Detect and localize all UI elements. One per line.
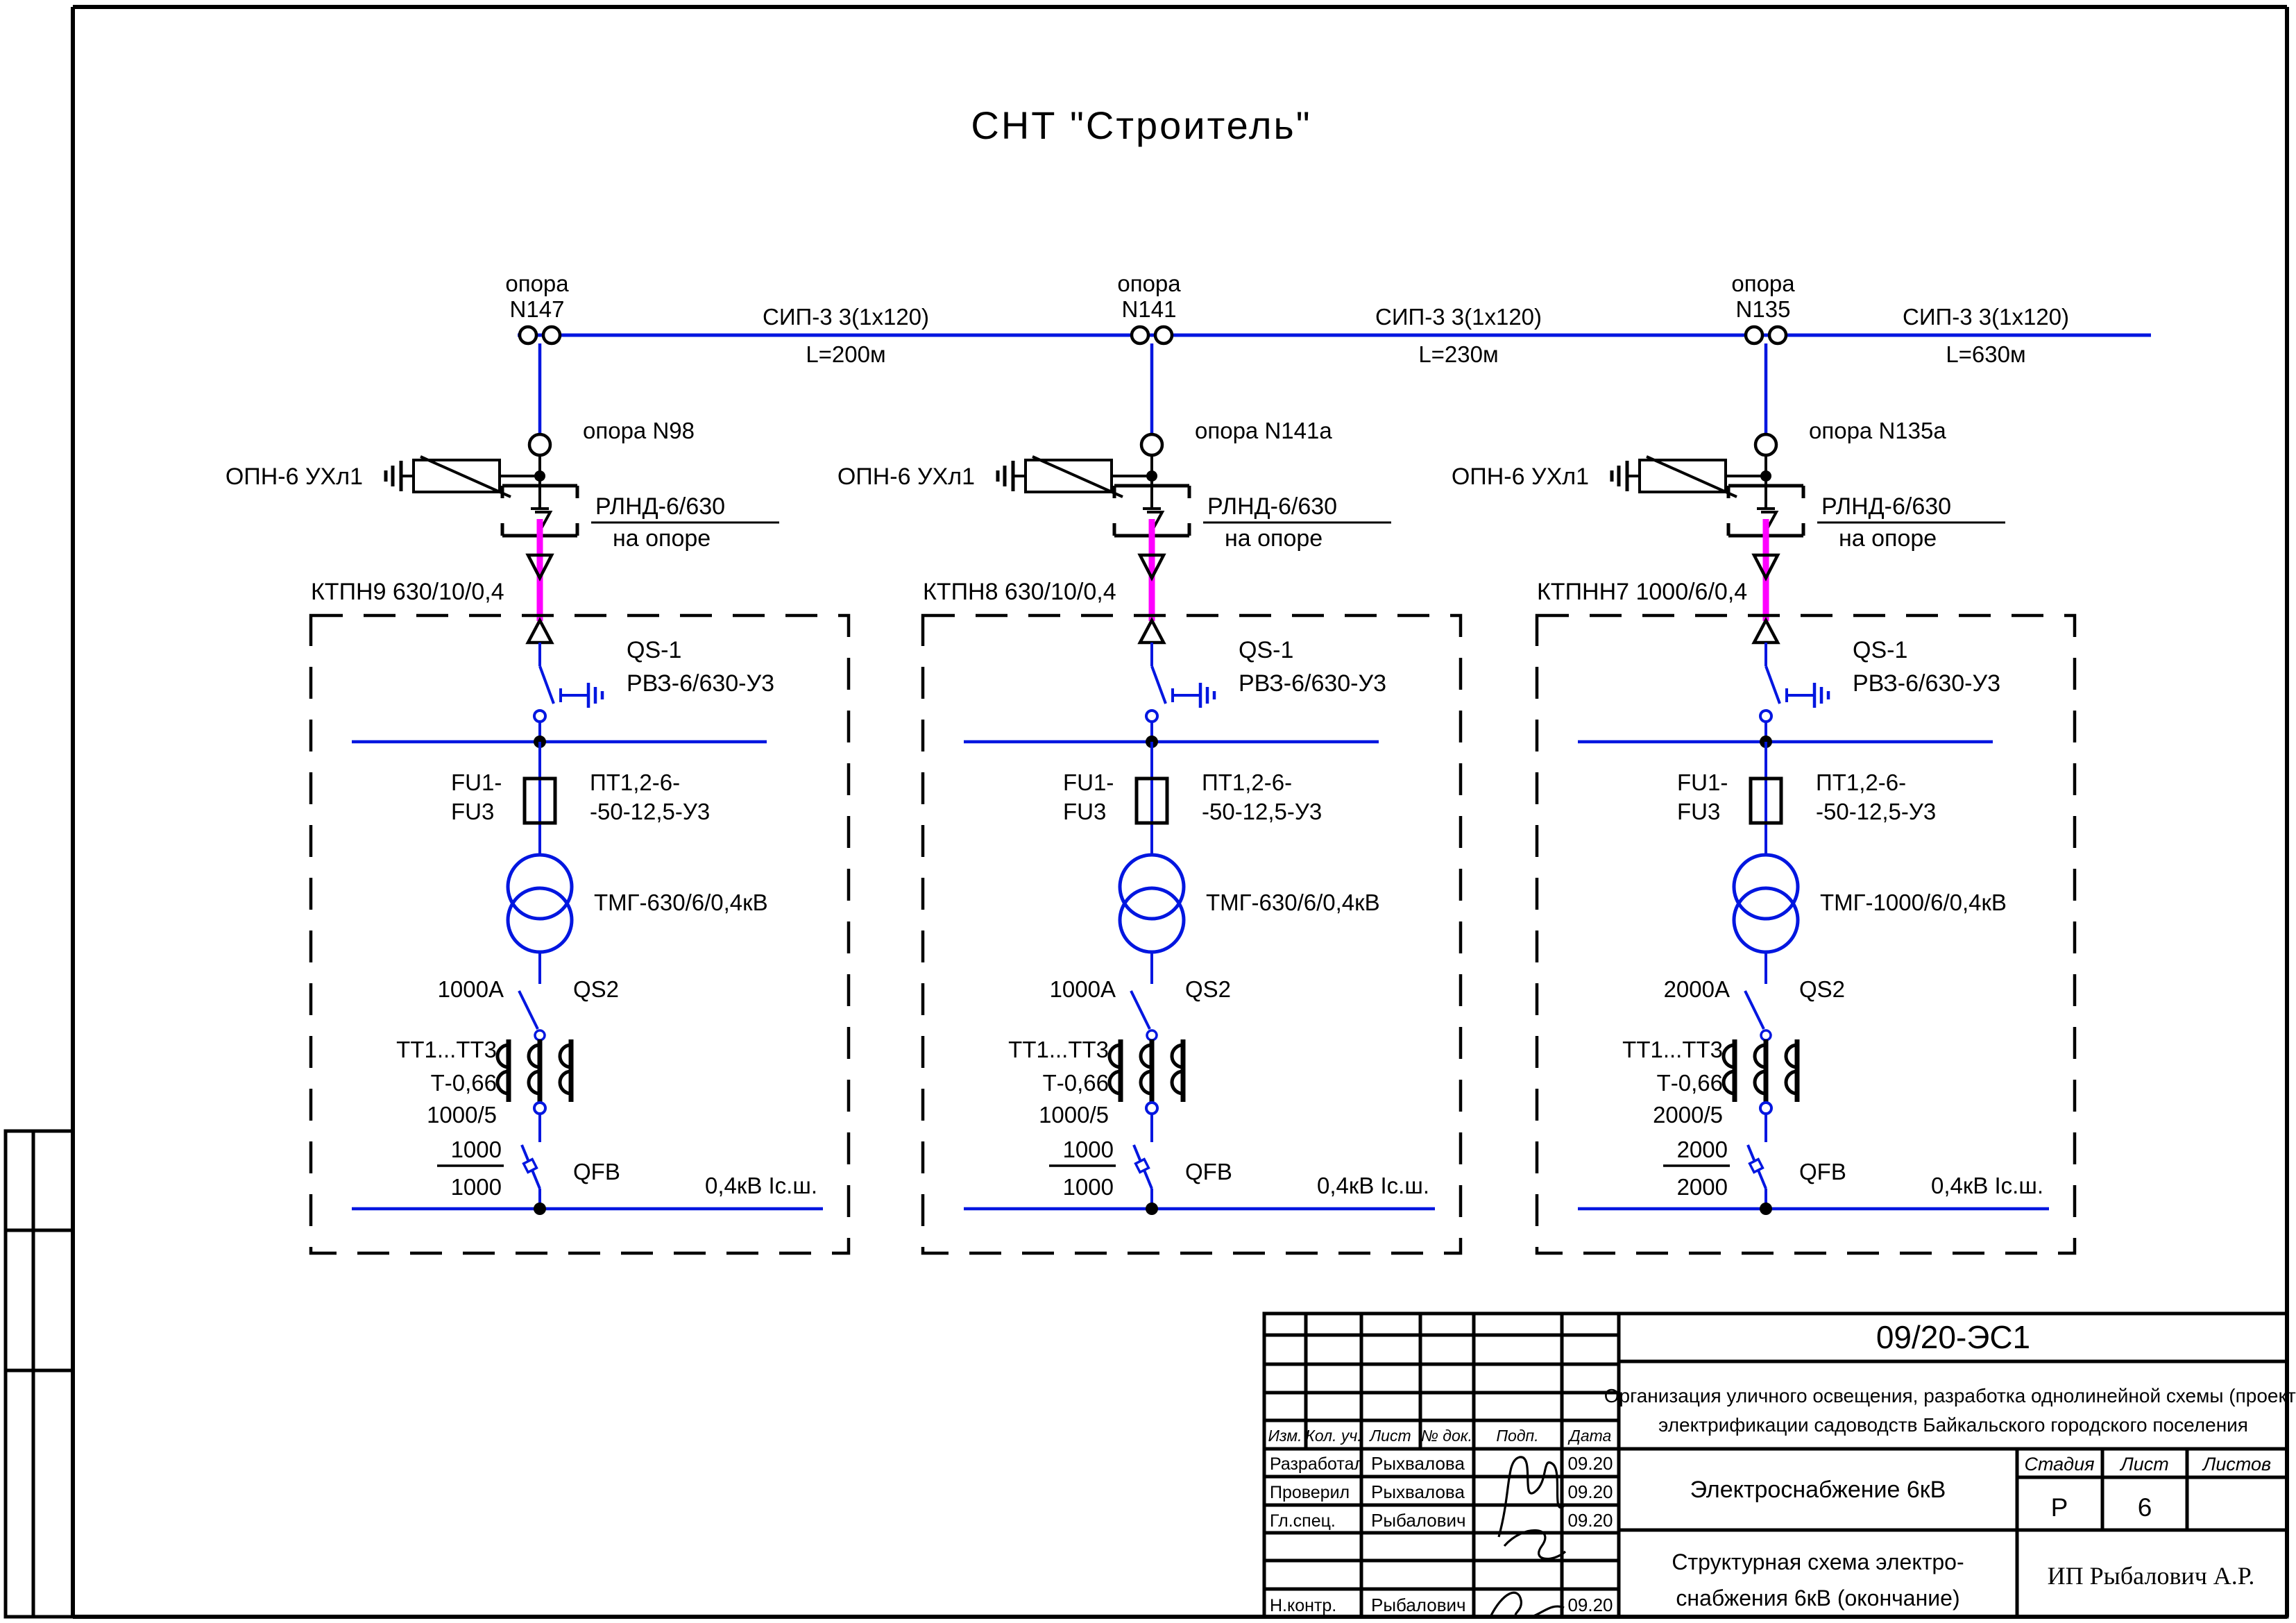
fuse-type-line2: -50-12,5-У3 <box>1202 799 1322 824</box>
qs1-label: QS-1 <box>1853 637 1907 663</box>
tap-pole-insulator <box>1141 434 1162 455</box>
tb-name-2: Рыхвалова <box>1371 1481 1465 1502</box>
station-label: КТПНН7 1000/6/0,4 <box>1537 579 1747 605</box>
lv-bus-label: 0,4кВ Iс.ш. <box>1317 1173 1429 1198</box>
signature-top <box>1499 1457 1565 1559</box>
ct-label-line3: 1000/5 <box>1039 1102 1109 1128</box>
lv-bus-junction-dot <box>1760 1203 1772 1215</box>
tb-date-2: 09.20 <box>1567 1481 1613 1502</box>
disconnector-sublabel: на опоре <box>1839 525 1937 552</box>
tb-date-3: 09.20 <box>1567 1510 1613 1531</box>
qs2-current-label: 1000А <box>1050 976 1116 1002</box>
station-enclosure <box>1537 615 2075 1253</box>
qfb-label: QFB <box>1799 1159 1846 1184</box>
schematic-group: СИП-3 3(1х120)L=200мопораN147опора N98ОП… <box>226 271 2151 1253</box>
station-enclosure <box>311 615 849 1253</box>
arrester-label: ОПН-6 УХл1 <box>1452 464 1589 490</box>
left-margin-stamp <box>6 1131 73 1617</box>
tb-header-podp: Подп. <box>1496 1427 1538 1445</box>
sip-cable-label: СИП-3 3(1х120) <box>1375 304 1542 330</box>
tb-header-doc: № док. <box>1421 1427 1472 1445</box>
cable-termination-lower <box>528 620 552 643</box>
qfb-label: QFB <box>1185 1159 1232 1184</box>
tb-header-data: Дата <box>1567 1427 1612 1445</box>
sheet-frame <box>73 7 2287 1617</box>
ct-bottom-contact <box>534 1103 545 1114</box>
qs1-type-label: РВЗ-6/630-У3 <box>1239 670 1386 697</box>
tb-section-title: Электроснабжение 6кВ <box>1690 1477 1946 1503</box>
qfb-breaker-square <box>1136 1159 1149 1173</box>
pole-label-number: N147 <box>510 296 565 322</box>
ct-label-line2: Т-0,66 <box>1657 1070 1723 1096</box>
drawing-title: СНТ "Строитель" <box>971 103 1311 147</box>
ct-label-line1: ТТ1...ТТ3 <box>1622 1037 1723 1062</box>
qs1-type-label: РВЗ-6/630-У3 <box>627 670 774 697</box>
pole-insulator-left <box>520 327 536 343</box>
fuse-label-line2: FU3 <box>1063 799 1106 824</box>
sip-length-label: L=630м <box>1946 341 2025 367</box>
lv-bus-junction-dot <box>1146 1203 1158 1215</box>
transformer-label: ТМГ-630/6/0,4кВ <box>1206 890 1380 915</box>
tb-name-6: Рыбалович <box>1371 1595 1466 1615</box>
pole-insulator-left <box>1132 327 1148 343</box>
tb-name-1: Рыхвалова <box>1371 1453 1465 1474</box>
tb-sheet-value: 6 <box>2138 1493 2152 1522</box>
tb-role-6: Н.контр. <box>1270 1596 1336 1615</box>
transformer-label: ТМГ-1000/6/0,4кВ <box>1820 890 2007 915</box>
sip-length-label: L=230м <box>1418 341 1498 367</box>
tb-role-2: Проверил <box>1270 1483 1350 1502</box>
disconnector-label: РЛНД-6/630 <box>595 493 725 520</box>
station-label: КТПН8 630/10/0,4 <box>923 579 1116 605</box>
ct-label-line2: Т-0,66 <box>1043 1070 1109 1096</box>
tap-pole-label: опора N141а <box>1195 418 1332 443</box>
tb-header-list: Лист <box>1368 1427 1411 1445</box>
fuse-label-line2: FU3 <box>451 799 494 824</box>
qs2-current-label: 1000А <box>438 976 504 1002</box>
qfb-setting-numerator: 2000 <box>1677 1137 1728 1162</box>
sip-cable-label: СИП-3 3(1х120) <box>763 304 929 330</box>
qs1-contact <box>534 711 545 722</box>
tb-header-kol: Кол. уч. <box>1305 1427 1361 1445</box>
disconnector-label: РЛНД-6/630 <box>1821 493 1951 520</box>
tb-date-6: 09.20 <box>1567 1595 1613 1615</box>
pole-insulator-right <box>1769 327 1786 343</box>
qs1-label: QS-1 <box>1239 637 1293 663</box>
pole-insulator-right <box>543 327 560 343</box>
qs2-label: QS2 <box>573 976 619 1002</box>
qfb-setting-denominator: 1000 <box>451 1174 502 1200</box>
sip-length-label: L=200м <box>806 341 885 367</box>
tb-doc-number: 09/20-ЭС1 <box>1876 1319 2030 1355</box>
qs1-contact <box>1146 711 1157 722</box>
pole-insulator-right <box>1155 327 1172 343</box>
qs2-blade <box>1131 991 1150 1029</box>
disconnector-sublabel: на опоре <box>1225 525 1323 552</box>
ct-label-line3: 2000/5 <box>1653 1102 1723 1128</box>
fuse-type-line2: -50-12,5-У3 <box>1816 799 1936 824</box>
fuse-type-line2: -50-12,5-У3 <box>590 799 710 824</box>
qs1-blade <box>540 666 554 704</box>
qfb-setting-denominator: 2000 <box>1677 1174 1728 1200</box>
qs1-blade <box>1766 666 1780 704</box>
qs2-label: QS2 <box>1185 976 1231 1002</box>
qs2-contact <box>1147 1030 1157 1040</box>
tb-role-1: Разработал <box>1270 1454 1364 1474</box>
pole-label-number: N141 <box>1122 296 1177 322</box>
tb-header-izm: Изм. <box>1268 1427 1302 1445</box>
station-label: КТПН9 630/10/0,4 <box>311 579 504 605</box>
arrester-label: ОПН-6 УХл1 <box>226 464 363 490</box>
tb-stage-value: Р <box>2051 1493 2068 1522</box>
fuse-label-line1: FU1- <box>451 770 502 795</box>
qs2-blade <box>519 991 538 1029</box>
fuse-label-line2: FU3 <box>1677 799 1720 824</box>
qs1-contact <box>1760 711 1771 722</box>
qs2-current-label: 2000А <box>1664 976 1730 1002</box>
qs2-contact <box>1761 1030 1771 1040</box>
tb-sheet-header: Лист <box>2119 1454 2169 1475</box>
tb-project-line1: Организация уличного освещения, разработ… <box>1604 1385 2296 1407</box>
schematic-svg: СНТ "Строитель" СИП-3 3(1х120)L=200мопор… <box>0 0 2296 1623</box>
ct-label-line2: Т-0,66 <box>431 1070 497 1096</box>
qs2-label: QS2 <box>1799 976 1845 1002</box>
qfb-label: QFB <box>573 1159 620 1184</box>
pole-label-word: опора <box>1731 271 1795 296</box>
tap-pole-label: опора N135а <box>1809 418 1946 443</box>
ct-bottom-contact <box>1146 1103 1157 1114</box>
qs2-blade <box>1745 991 1764 1029</box>
pole-label-word: опора <box>1117 271 1181 296</box>
tap-pole-insulator <box>1755 434 1776 455</box>
pole-label-word: опора <box>505 271 569 296</box>
lv-bus-junction-dot <box>534 1203 546 1215</box>
qs1-label: QS-1 <box>627 637 681 663</box>
tb-sheet-title-line2: снабжения 6кВ (окончание) <box>1676 1586 1959 1611</box>
fuse-type-line1: ПТ1,2-6- <box>1202 770 1292 795</box>
fuse-label-line1: FU1- <box>1677 770 1728 795</box>
disconnector-sublabel: на опоре <box>613 525 711 552</box>
tb-date-1: 09.20 <box>1567 1453 1613 1474</box>
fuse-label-line1: FU1- <box>1063 770 1114 795</box>
cable-termination-lower <box>1754 620 1778 643</box>
pole-insulator-left <box>1746 327 1762 343</box>
fuse-type-line1: ПТ1,2-6- <box>1816 770 1906 795</box>
qfb-setting-numerator: 1000 <box>1063 1137 1114 1162</box>
disconnector-label: РЛНД-6/630 <box>1207 493 1337 520</box>
tb-stage-header: Стадия <box>2024 1454 2094 1475</box>
lv-bus-label: 0,4кВ Iс.ш. <box>1931 1173 2043 1198</box>
qfb-setting-denominator: 1000 <box>1063 1174 1114 1200</box>
signatures <box>1490 1457 1565 1617</box>
tb-sheets-header: Листов <box>2202 1454 2271 1475</box>
qfb-setting-numerator: 1000 <box>451 1137 502 1162</box>
drawing-sheet: СНТ "Строитель" СИП-3 3(1х120)L=200мопор… <box>0 0 2296 1623</box>
qfb-breaker-square <box>524 1159 537 1173</box>
sip-cable-label: СИП-3 3(1х120) <box>1903 304 2069 330</box>
tap-pole-insulator <box>529 434 550 455</box>
arrester-label: ОПН-6 УХл1 <box>837 464 975 490</box>
tb-sheet-title-line1: Структурная схема электро- <box>1672 1549 1964 1574</box>
qs1-blade <box>1152 666 1166 704</box>
ct-label-line1: ТТ1...ТТ3 <box>396 1037 497 1062</box>
signature-nkontr <box>1490 1592 1564 1617</box>
lv-bus-label: 0,4кВ Iс.ш. <box>705 1173 817 1198</box>
qs1-type-label: РВЗ-6/630-У3 <box>1853 670 2000 697</box>
tb-role-3: Гл.спец. <box>1270 1511 1336 1531</box>
pole-label-number: N135 <box>1736 296 1791 322</box>
tb-company: ИП Рыбалович А.Р. <box>2048 1562 2255 1590</box>
fuse-type-line1: ПТ1,2-6- <box>590 770 680 795</box>
station-enclosure <box>923 615 1461 1253</box>
stamp-outline <box>6 1131 73 1617</box>
transformer-label: ТМГ-630/6/0,4кВ <box>594 890 768 915</box>
qs2-contact <box>535 1030 545 1040</box>
tap-pole-label: опора N98 <box>583 418 695 443</box>
title-block: Изм. Кол. уч. Лист № док. Подп. Дата Раз… <box>1264 1314 2296 1617</box>
qfb-breaker-square <box>1750 1159 1763 1173</box>
ct-bottom-contact <box>1760 1103 1771 1114</box>
tb-project-line2: электрификации садоводств Байкальского г… <box>1658 1414 2248 1436</box>
cable-termination-lower <box>1140 620 1164 643</box>
ct-label-line3: 1000/5 <box>427 1102 497 1128</box>
tb-name-3: Рыбалович <box>1371 1510 1466 1531</box>
ct-label-line1: ТТ1...ТТ3 <box>1008 1037 1109 1062</box>
